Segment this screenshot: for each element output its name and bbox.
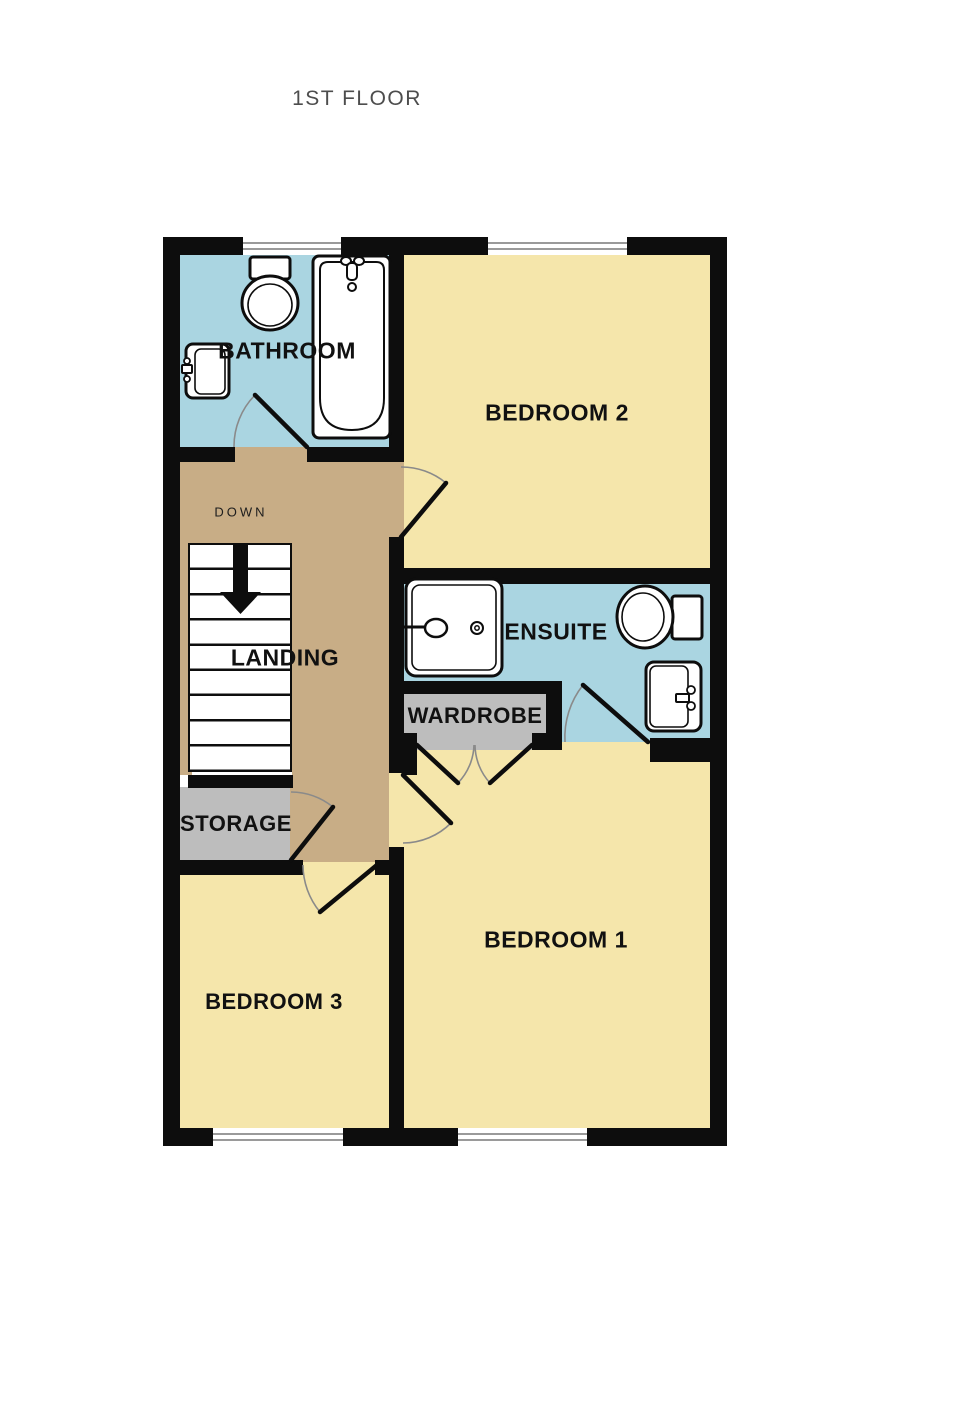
floor-plan-canvas: 1ST FLOOR — [0, 0, 980, 1403]
wall-exterior-left — [163, 237, 180, 1146]
wall-bathroom-left — [180, 447, 235, 462]
floor-title: 1ST FLOOR — [292, 87, 422, 111]
wall-ensuite-bottom — [650, 738, 710, 762]
bedroom1-label: BEDROOM 1 — [484, 927, 628, 954]
window-bedroom3 — [213, 1128, 343, 1146]
wall-wardrobe-top — [404, 681, 562, 694]
wall-center-lower — [389, 847, 404, 1128]
wall-bathroom-right — [307, 447, 389, 462]
wall-bedroom3-door-stub — [375, 860, 404, 875]
wall-bedroom2-ensuite — [389, 568, 710, 584]
wardrobe-label: WARDROBE — [408, 703, 543, 729]
bathroom-label: BATHROOM — [218, 338, 356, 365]
bedroom1-doorway-floor — [389, 773, 404, 847]
bedroom2-label: BEDROOM 2 — [485, 400, 629, 427]
landing-label: LANDING — [231, 645, 339, 672]
wall-wardrobe-stub-right — [532, 733, 562, 750]
storage-label: STORAGE — [180, 811, 292, 837]
wall-stairs-bottom — [188, 775, 293, 788]
bedroom3-label: BEDROOM 3 — [205, 989, 343, 1015]
stairs-down-label: DOWN — [214, 505, 267, 520]
ensuite-label: ENSUITE — [504, 619, 607, 646]
wall-center-upper — [389, 255, 404, 462]
window-bathroom — [243, 237, 341, 255]
window-bedroom1 — [458, 1128, 587, 1146]
wall-wardrobe-stub-left — [404, 733, 417, 775]
wall-storage-bottom — [180, 860, 303, 875]
wall-exterior-right — [710, 237, 727, 1146]
landing-floor-lower — [288, 775, 404, 862]
window-bedroom2 — [488, 237, 627, 255]
